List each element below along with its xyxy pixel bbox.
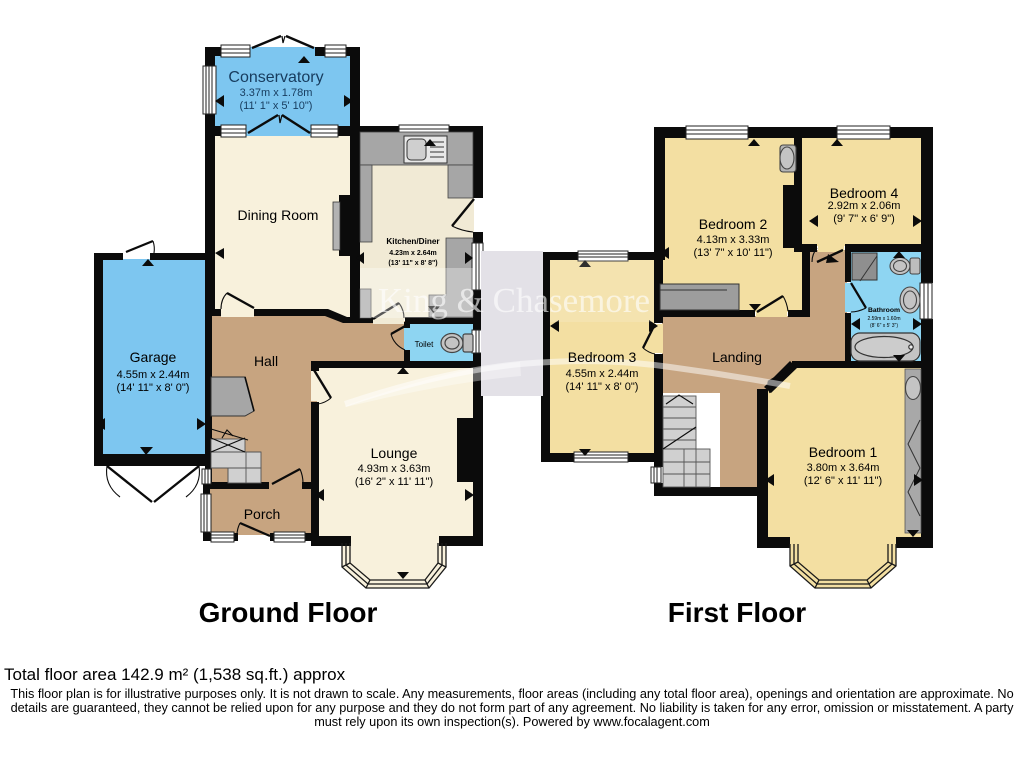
svg-text:Bedroom 1: Bedroom 1 bbox=[809, 444, 878, 460]
svg-text:(11' 1" x 5' 10"): (11' 1" x 5' 10") bbox=[240, 100, 313, 112]
svg-text:must rely upon its own inspect: must rely upon its own inspection(s). Po… bbox=[314, 715, 710, 729]
svg-text:(13' 7" x 10' 11"): (13' 7" x 10' 11") bbox=[693, 247, 772, 259]
svg-text:Lounge: Lounge bbox=[371, 445, 418, 461]
svg-text:4.55m x 2.44m: 4.55m x 2.44m bbox=[566, 368, 639, 380]
svg-text:Bedroom 4: Bedroom 4 bbox=[830, 185, 899, 201]
svg-text:3.37m x 1.78m: 3.37m x 1.78m bbox=[240, 87, 313, 99]
svg-text:4.23m x 2.64m: 4.23m x 2.64m bbox=[389, 250, 436, 257]
svg-text:4.93m x 3.63m: 4.93m x 3.63m bbox=[358, 463, 431, 475]
svg-text:First Floor: First Floor bbox=[668, 597, 807, 628]
svg-text:(14' 11" x 8' 0"): (14' 11" x 8' 0") bbox=[566, 381, 639, 393]
svg-text:Conservatory: Conservatory bbox=[228, 69, 323, 86]
svg-text:Kitchen/Diner: Kitchen/Diner bbox=[386, 237, 440, 246]
svg-text:Bedroom 2: Bedroom 2 bbox=[699, 216, 768, 232]
svg-text:Total floor area 142.9 m² (1,5: Total floor area 142.9 m² (1,538 sq.ft.)… bbox=[4, 665, 346, 684]
svg-text:details are guaranteed, they c: details are guaranteed, they cannot be r… bbox=[11, 701, 1015, 715]
svg-text:(12' 6" x 11' 11"): (12' 6" x 11' 11") bbox=[804, 475, 882, 487]
svg-text:Bedroom 3: Bedroom 3 bbox=[568, 349, 637, 365]
svg-text:(8' 6" x 5' 3"): (8' 6" x 5' 3") bbox=[870, 323, 898, 329]
svg-text:4.13m x 3.33m: 4.13m x 3.33m bbox=[697, 234, 770, 246]
svg-text:Dining Room: Dining Room bbox=[238, 207, 319, 223]
svg-text:Bathroom: Bathroom bbox=[868, 307, 900, 314]
svg-text:(16' 2" x 11' 11"): (16' 2" x 11' 11") bbox=[355, 476, 433, 488]
svg-text:(13' 11" x 8' 8"): (13' 11" x 8' 8") bbox=[388, 260, 437, 267]
svg-text:2.59m x 1.60m: 2.59m x 1.60m bbox=[867, 316, 900, 322]
svg-text:4.55m x 2.44m: 4.55m x 2.44m bbox=[117, 369, 190, 381]
svg-text:(9' 7" x 6' 9"): (9' 7" x 6' 9") bbox=[833, 213, 895, 225]
svg-text:Landing: Landing bbox=[712, 349, 762, 365]
svg-text:Garage: Garage bbox=[130, 349, 177, 365]
svg-text:King & Chasemore: King & Chasemore bbox=[378, 281, 650, 320]
svg-text:2.92m x 2.06m: 2.92m x 2.06m bbox=[828, 200, 901, 212]
svg-text:This floor plan is for illustr: This floor plan is for illustrative purp… bbox=[10, 687, 1013, 701]
svg-text:3.80m x 3.64m: 3.80m x 3.64m bbox=[807, 462, 880, 474]
svg-text:(14' 11" x 8' 0"): (14' 11" x 8' 0") bbox=[117, 382, 190, 394]
svg-text:Porch: Porch bbox=[244, 506, 281, 522]
svg-text:Toilet: Toilet bbox=[415, 340, 434, 349]
svg-text:Ground Floor: Ground Floor bbox=[199, 597, 378, 628]
svg-text:Hall: Hall bbox=[254, 353, 278, 369]
